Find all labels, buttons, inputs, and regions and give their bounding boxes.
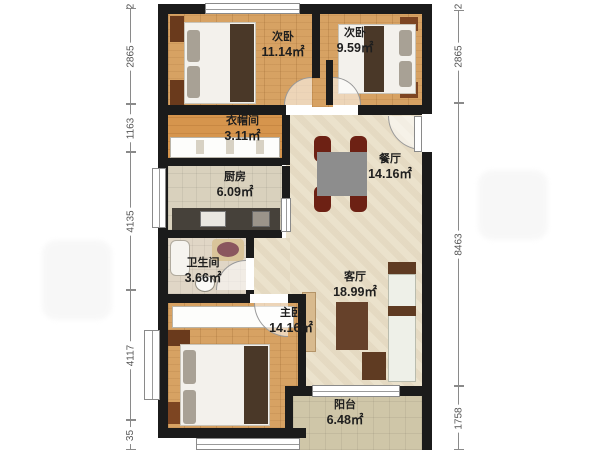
- coffee-table-icon: [336, 302, 368, 350]
- sliding-door-balcony-icon: [312, 385, 400, 397]
- bathroom-door-opening: [246, 258, 254, 290]
- watermark: [478, 170, 548, 240]
- dim-value: 35: [125, 426, 138, 443]
- wall-bathroom-right: [246, 238, 254, 258]
- pillow-icon: [187, 66, 200, 98]
- wall-master-bottom: [158, 428, 306, 438]
- sink-icon: [252, 211, 270, 227]
- washbasin-icon: [195, 275, 215, 292]
- floor-balcony: [293, 396, 422, 450]
- wall-below-bedroom2a: [168, 105, 286, 115]
- wardrobe-icon: [170, 80, 184, 106]
- wardrobe-icon: [170, 16, 184, 42]
- dim-value: 8463: [453, 230, 466, 258]
- ottoman-icon: [362, 352, 386, 380]
- blanket-icon: [364, 26, 384, 92]
- sofa-divider-icon: [388, 306, 416, 316]
- wall-right-lower: [422, 152, 432, 450]
- dim-left-2: 1163: [130, 104, 131, 152]
- pillow-icon: [187, 30, 200, 62]
- stove-icon: [200, 211, 226, 227]
- bathtub-icon: [170, 240, 190, 276]
- dim-left-1: 2865: [130, 8, 131, 104]
- dim-value: 4117: [125, 341, 138, 369]
- dim-right-2: 8463: [458, 103, 459, 386]
- wall-master-top: [168, 294, 250, 303]
- wall-cloakroom-bottom: [168, 158, 282, 166]
- window-master-bottom-icon: [196, 438, 300, 450]
- wall-kitchen-bottom: [168, 230, 282, 238]
- dim-value: 1758: [453, 404, 466, 432]
- dim-value: 1163: [125, 114, 138, 142]
- door-opening: [333, 105, 358, 115]
- bay-window-master-icon: [144, 330, 160, 400]
- pillow-icon: [183, 390, 196, 424]
- closet-item-icon: [196, 140, 204, 154]
- pillow-icon: [399, 30, 412, 56]
- door-opening: [286, 105, 312, 115]
- dim-left-4: 4117: [130, 290, 131, 420]
- closet-item-icon: [256, 140, 264, 154]
- blanket-icon: [244, 346, 268, 424]
- dim-value: 2865: [453, 42, 466, 70]
- dim-value: 4135: [125, 207, 138, 235]
- entry-door-opening: [422, 114, 432, 152]
- wall-master-right: [298, 294, 306, 392]
- pillow-icon: [183, 350, 196, 384]
- toilet-icon: [217, 242, 239, 257]
- watermark: [42, 240, 112, 320]
- dim-value: 2865: [125, 42, 138, 70]
- dim-left-3: 4135: [130, 152, 131, 290]
- wall-between-bedrooms: [312, 14, 320, 78]
- wall-cloakroom-right: [282, 115, 290, 165]
- sofa-icon: [388, 274, 416, 382]
- dim-top-partial-right: 2: [453, 4, 464, 10]
- window-bedroom2a-icon: [205, 3, 300, 14]
- blanket-icon: [230, 24, 254, 102]
- dining-table-icon: [317, 152, 367, 196]
- master-door-opening: [250, 294, 288, 303]
- window-kitchen-icon: [152, 168, 166, 228]
- dim-right-1: 2865: [458, 10, 459, 103]
- wall-right-upper: [422, 4, 432, 114]
- dim-left-5: 35: [130, 420, 131, 450]
- entry-door-leaf-icon: [414, 116, 422, 152]
- pillow-icon: [399, 61, 412, 87]
- wall-kitchen-right: [282, 166, 290, 198]
- dim-right-3: 1758: [458, 386, 459, 450]
- wall-vestibule: [326, 60, 333, 105]
- wall-below-bedroom2b: [358, 105, 422, 115]
- closet-item-icon: [226, 140, 234, 154]
- floorplan-canvas: 次卧 11.14㎡ 次卧 9.59㎡ 衣帽间 3.11㎡ 厨房 6.09㎡ 餐厅…: [0, 0, 600, 450]
- kitchen-sliding-door-icon: [281, 198, 291, 232]
